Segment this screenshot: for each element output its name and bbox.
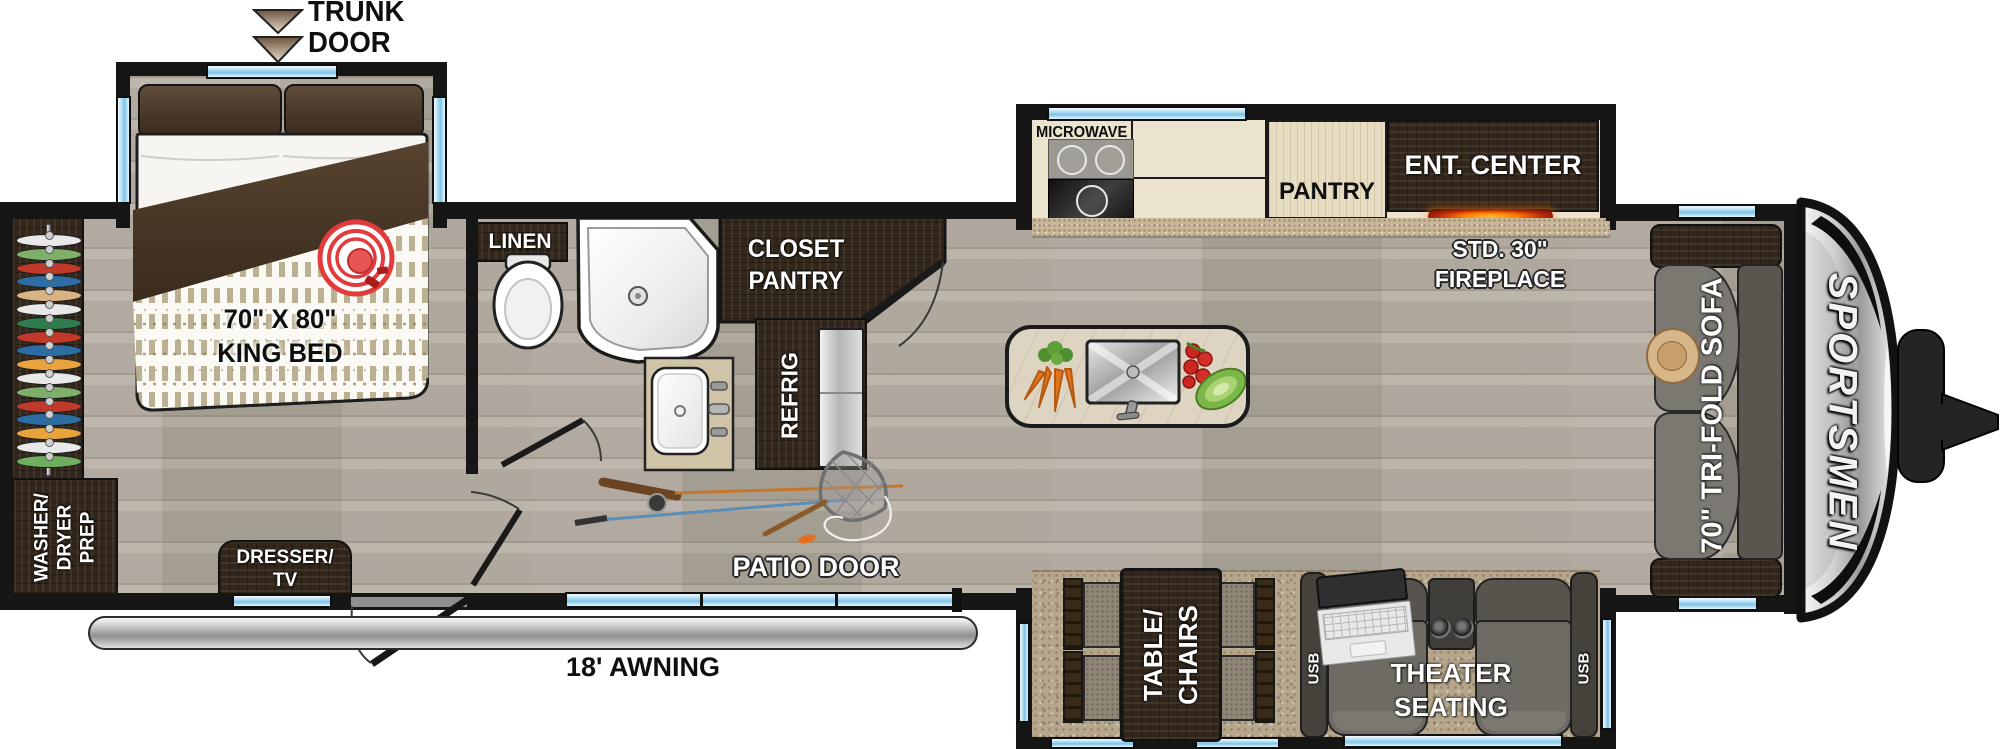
dinette-chair-back [1063, 651, 1083, 723]
cowboy-hat-icon [1646, 328, 1700, 384]
kitchen-island [1005, 325, 1250, 428]
cupholder-icon [1430, 618, 1451, 639]
closet-pantry-label: CLOSET PANTRY [726, 233, 867, 297]
sofa-armrest-top [1650, 224, 1782, 268]
oven [1048, 179, 1134, 219]
king-bed [133, 128, 429, 414]
counter-seam-3 [1133, 177, 1265, 179]
cupholder-icon [1453, 618, 1474, 639]
floorplan-stage: 70" X 80" KING BED WASHER/ DRYER PREP DR… [0, 0, 2000, 749]
dinette-chair-back [1255, 578, 1275, 650]
dinette-chair-back [1255, 651, 1275, 723]
slideout-window-right [1601, 618, 1613, 730]
kitchen-window [1047, 106, 1247, 121]
bedroom-window-left [116, 96, 131, 204]
patio-door-glass [565, 592, 955, 608]
trunk-door-label: TRUNK DOOR [308, 0, 451, 59]
theater-seat-back-right [1475, 578, 1572, 624]
bedroom-window-top [206, 64, 338, 79]
awning-label: 18' AWNING [538, 652, 748, 683]
hitch [1888, 318, 2000, 493]
king-bed-label: 70" X 80" KING BED [199, 302, 361, 370]
entry-door-sill [350, 596, 468, 608]
laptop [1313, 567, 1418, 671]
trunk-door-arrow-icon [252, 8, 304, 64]
kitchen-backsplash-strip [1032, 218, 1610, 238]
dinette-chair-seat [1083, 655, 1121, 721]
brand-logo: SPORTSMEN [1820, 243, 1865, 583]
dresser-tv-label: DRESSER/ TV [218, 546, 352, 592]
washer-dryer-prep-label: WASHER/ DRYER PREP [31, 483, 100, 593]
theater-seating-label: THEATER SEATING [1360, 656, 1542, 724]
table-chairs-label: TABLE/ CHAIRS [1136, 595, 1206, 715]
theater-console [1428, 578, 1475, 650]
fireplace-label: STD. 30" FIREPLACE [1412, 234, 1588, 294]
island-sink-icon [1087, 341, 1179, 420]
wall-rear [0, 202, 13, 610]
cooktop [1048, 139, 1134, 179]
bedroom-window-right [432, 96, 447, 204]
wall-bathroom [466, 202, 478, 474]
slideout-window-left [1018, 622, 1030, 723]
dinette-chair-back [1063, 578, 1083, 650]
dinette-chair-seat [1217, 655, 1255, 721]
microwave-label: MICROWAVE [1036, 124, 1156, 142]
pantry-label: PANTRY [1267, 178, 1387, 206]
awning-tube [88, 616, 978, 650]
sofa-backrest [1737, 264, 1783, 560]
wall-top-rear [0, 202, 122, 219]
window-top-front [1677, 204, 1757, 219]
ent-center-label: ENT. CENTER [1387, 150, 1599, 181]
red-hat-icon [320, 222, 392, 294]
sofa-label: 70" TRI-FOLD SOFA [1697, 266, 1730, 566]
slideout-window-bottom-3 [1343, 734, 1563, 748]
dinette-chair-seat [1217, 582, 1255, 648]
patio-door-jamb [952, 588, 962, 612]
window-bottom-front [1677, 596, 1758, 611]
laptop-keyboard [1317, 600, 1416, 666]
hanger-rack [16, 230, 80, 478]
patio-door-label: PATIO DOOR [686, 552, 946, 583]
window-dresser [232, 594, 332, 608]
dinette-chair-seat [1083, 582, 1121, 648]
wall-top-mid [438, 202, 1026, 219]
fishing-gear [555, 440, 915, 550]
usb-label-right: USB [1576, 639, 1593, 699]
carrots-icon [1025, 341, 1075, 411]
